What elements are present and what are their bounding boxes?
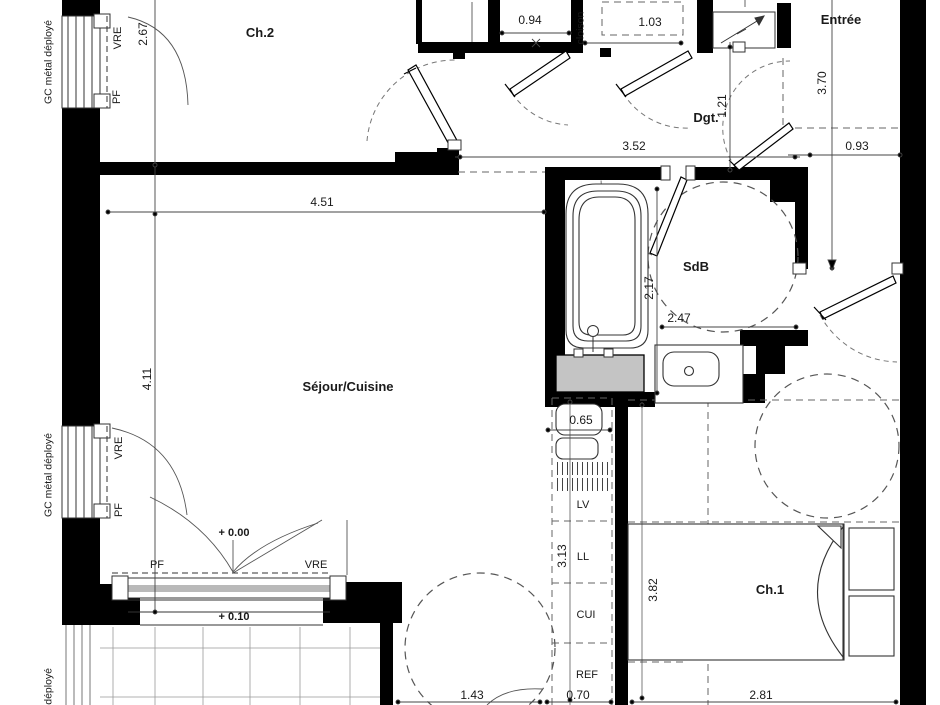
dim-ch1-width: 2.81 [749,688,773,702]
window-label-pf-mid: PF [113,503,125,517]
pillow [849,596,894,656]
pillow [849,528,894,590]
room-label-ch1: Ch.1 [756,582,784,597]
window-label-pf-bay: PF [150,559,164,571]
bathroom-cabinet [556,355,644,392]
window-label-vre-mid: VRE [113,437,125,460]
door-leaf-ch1 [820,276,896,319]
room-label-ch2: Ch.2 [246,25,274,40]
window-label-vre-bay: VRE [305,559,328,571]
dim-kitchen-length: 3.13 [555,544,569,568]
door-leaf-dgt-2 [621,51,692,96]
floor-plan-svg: Ch.2 Dgt. Entrée SdB Séjour/Cuisine Ch.1… [0,0,940,705]
appliance-label-ref: REF [576,669,598,681]
level-mark-ten: + 0.10 [219,611,250,623]
window-label-vre-top: VRE [112,27,124,50]
room-label-sdb: SdB [683,259,709,274]
bathtub [566,184,648,348]
dim-sejour-bottom: 1.43 [460,688,484,702]
entrance-door [713,12,775,52]
door-leaf-sejour-dgt [734,123,793,171]
appliance-label-lv: LV [577,499,590,511]
annotation-gc-metal-mid: GC métal déployé [43,433,55,517]
windows [62,14,346,625]
annotation-gc-metal-bottom: GC métal déployé [43,668,55,705]
dim-dgt-height: 1.21 [715,94,729,118]
room-label-sejour-cuisine: Séjour/Cuisine [302,379,393,394]
washbasin [655,345,743,403]
dim-kitchen-bottom: 0.70 [566,688,590,702]
appliance-label-ll: LL [577,551,589,563]
dim-dgt-length: 3.52 [622,139,646,153]
door-leaf-ch2 [408,65,460,150]
dim-sdb-depth: 2.17 [642,276,656,300]
balcony-tiles [66,625,380,705]
dim-ch2-width: 2.67 [136,22,150,46]
window-label-pf-top: PF [111,90,123,104]
dim-sdb-width: 2.47 [667,311,691,325]
door-leaf-dgt-1 [510,51,570,96]
annotation-gc-metal-top: GC métal déployé [43,20,55,104]
appliance-label-cui: CUI [577,609,596,621]
turning-circle-ch1 [755,374,899,518]
dim-sejour-width: 4.51 [310,195,334,209]
room-label-entree: Entrée [821,12,861,27]
dim-dgt-bay2: 1.03 [638,15,662,29]
dim-ch1-height: 3.82 [646,578,660,602]
dim-dgt-bay1: 0.94 [518,13,542,27]
level-mark-zero: + 0.00 [219,527,250,539]
dim-sejour-height: 4.11 [140,367,154,390]
floor-plan: Ch.2 Dgt. Entrée SdB Séjour/Cuisine Ch.1… [0,0,940,705]
dim-entree-width: 0.93 [845,139,869,153]
turning-circle-sejour [405,573,555,705]
dim-entree-depth: 3.70 [815,71,829,95]
dim-kitchen-width: 0.65 [569,413,593,427]
annotation-cloison: cloison [575,11,587,44]
